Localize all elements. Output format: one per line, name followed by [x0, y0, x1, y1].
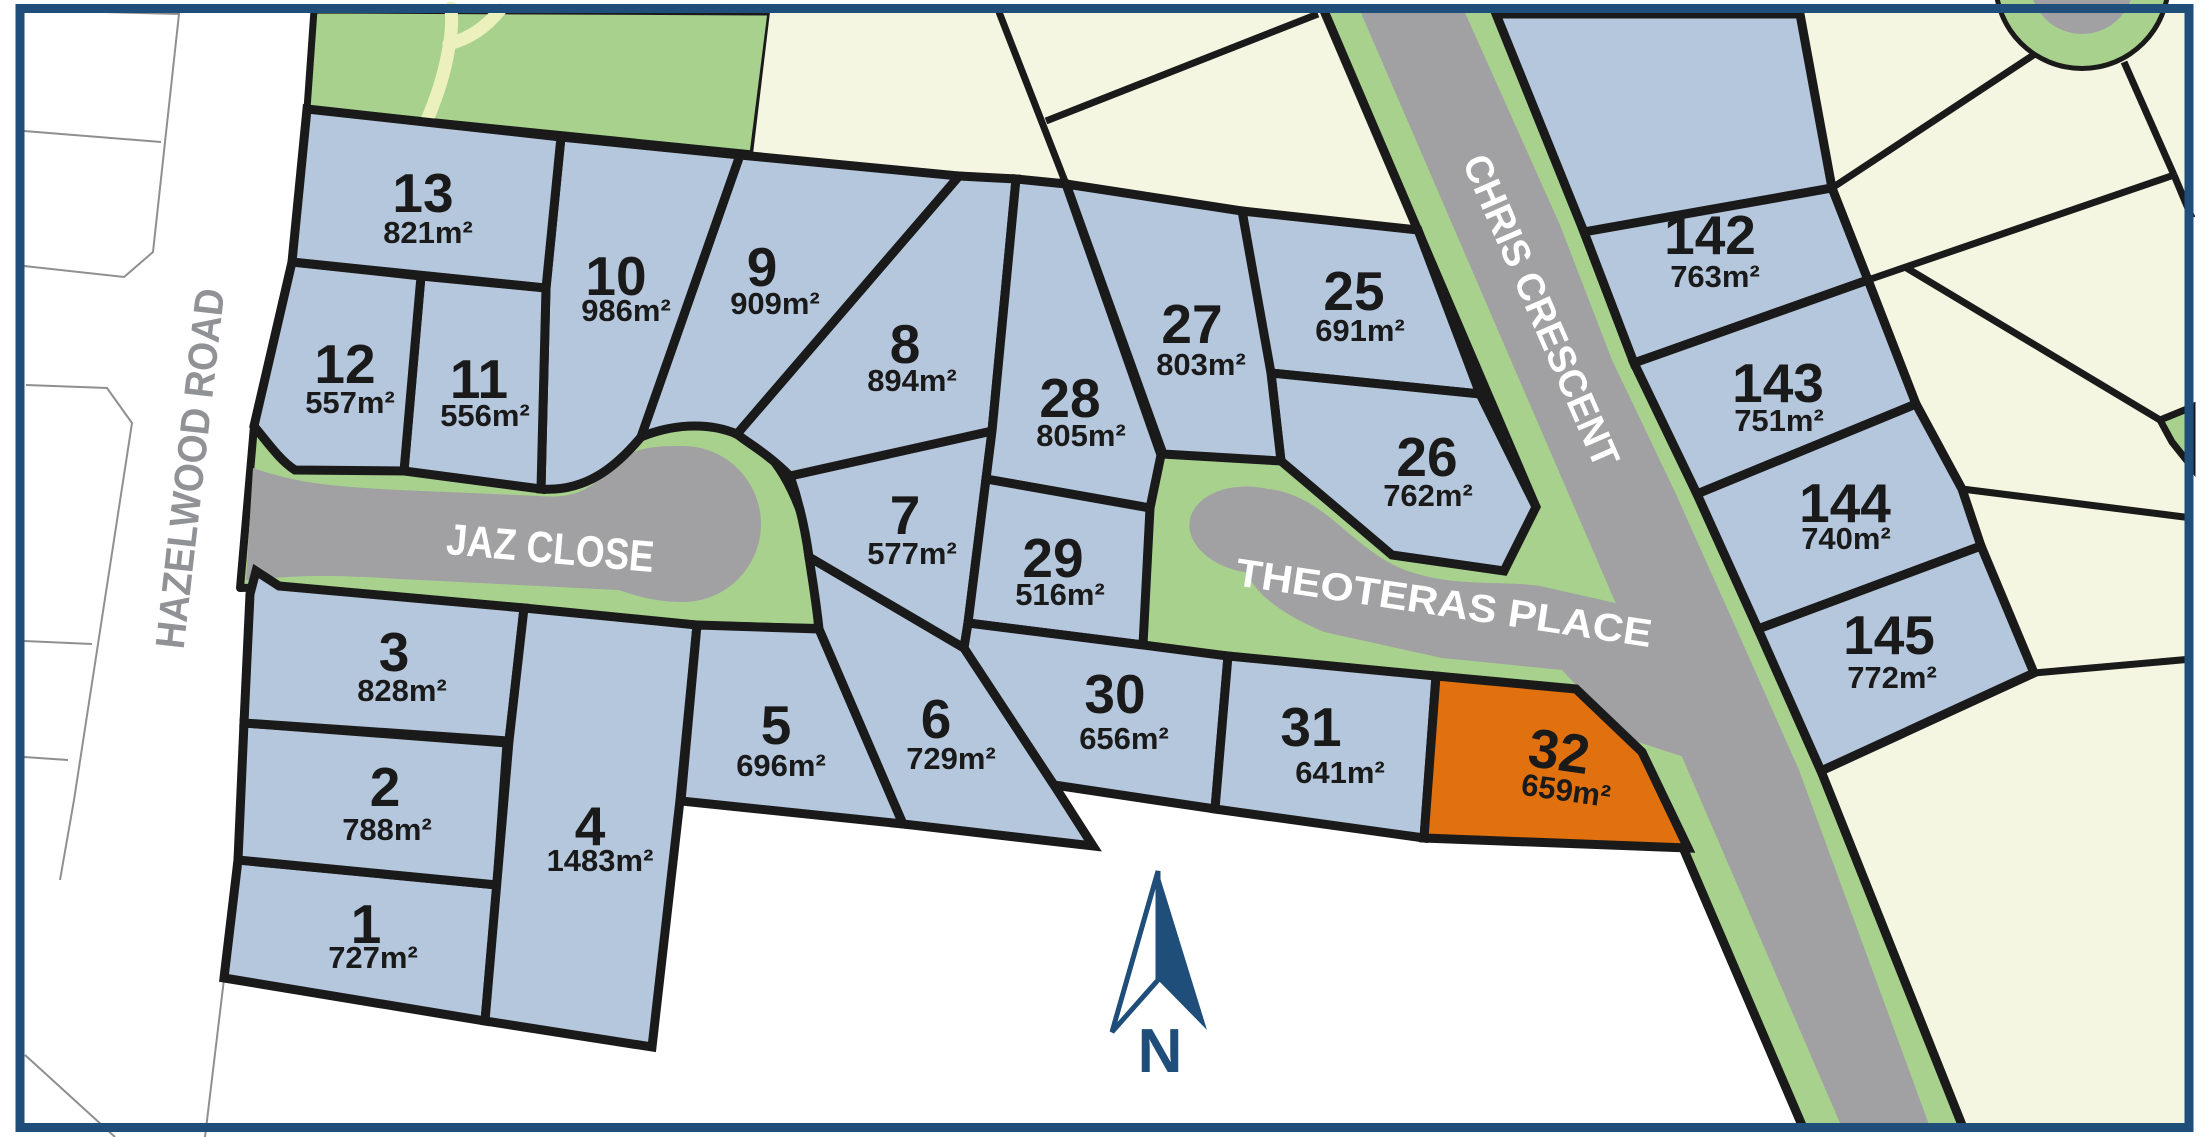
svg-text:788m²: 788m²: [342, 812, 432, 847]
svg-text:577m²: 577m²: [867, 536, 957, 571]
svg-text:803m²: 803m²: [1156, 347, 1246, 382]
svg-text:145: 145: [1843, 604, 1935, 666]
svg-text:986m²: 986m²: [581, 293, 671, 328]
svg-text:763m²: 763m²: [1670, 259, 1760, 294]
svg-text:5: 5: [761, 694, 792, 756]
svg-text:762m²: 762m²: [1383, 478, 1473, 513]
svg-text:727m²: 727m²: [328, 940, 418, 975]
svg-text:31: 31: [1280, 696, 1341, 758]
svg-text:2: 2: [370, 756, 401, 818]
svg-text:729m²: 729m²: [906, 741, 996, 776]
svg-text:30: 30: [1084, 663, 1145, 725]
svg-text:691m²: 691m²: [1315, 313, 1405, 348]
svg-text:27: 27: [1161, 293, 1222, 355]
svg-text:656m²: 656m²: [1079, 721, 1169, 756]
svg-text:N: N: [1138, 1017, 1183, 1086]
svg-text:828m²: 828m²: [357, 673, 447, 708]
svg-text:557m²: 557m²: [305, 385, 395, 420]
svg-text:772m²: 772m²: [1847, 660, 1937, 695]
svg-text:894m²: 894m²: [867, 363, 957, 398]
svg-text:909m²: 909m²: [730, 286, 820, 321]
svg-text:1483m²: 1483m²: [547, 843, 654, 878]
svg-text:696m²: 696m²: [736, 748, 826, 783]
svg-text:556m²: 556m²: [440, 398, 530, 433]
svg-text:821m²: 821m²: [383, 215, 473, 250]
svg-text:751m²: 751m²: [1734, 403, 1824, 438]
svg-text:142: 142: [1664, 204, 1756, 266]
svg-text:805m²: 805m²: [1036, 418, 1126, 453]
svg-text:740m²: 740m²: [1801, 521, 1891, 556]
svg-text:641m²: 641m²: [1295, 755, 1385, 790]
svg-text:516m²: 516m²: [1015, 577, 1105, 612]
